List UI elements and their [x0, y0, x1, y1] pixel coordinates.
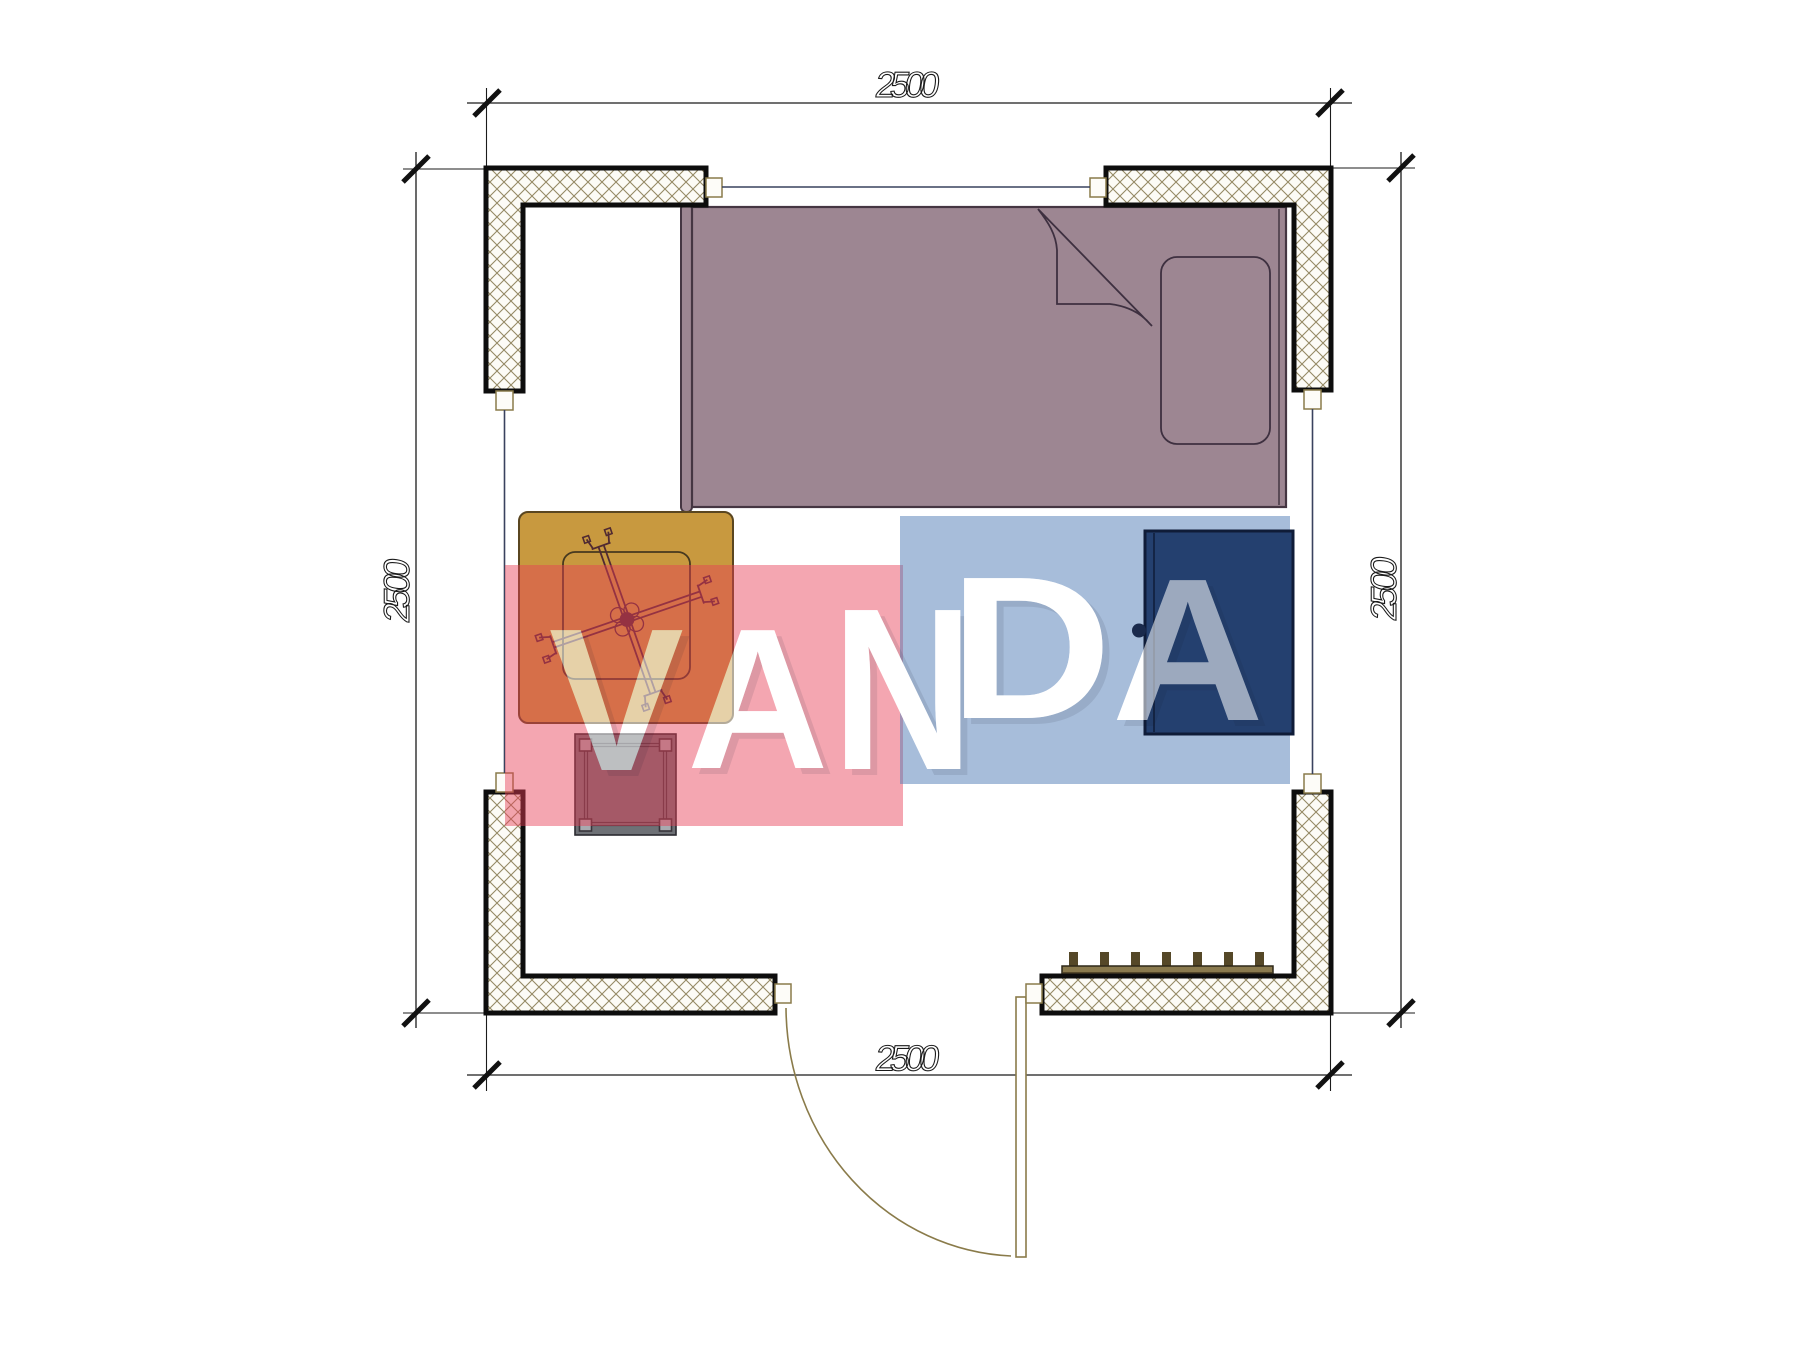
svg-text:2500: 2500 — [1363, 553, 1404, 623]
svg-text:2500: 2500 — [873, 1038, 943, 1079]
svg-text:2500: 2500 — [873, 64, 943, 105]
svg-text:2500: 2500 — [376, 555, 417, 625]
